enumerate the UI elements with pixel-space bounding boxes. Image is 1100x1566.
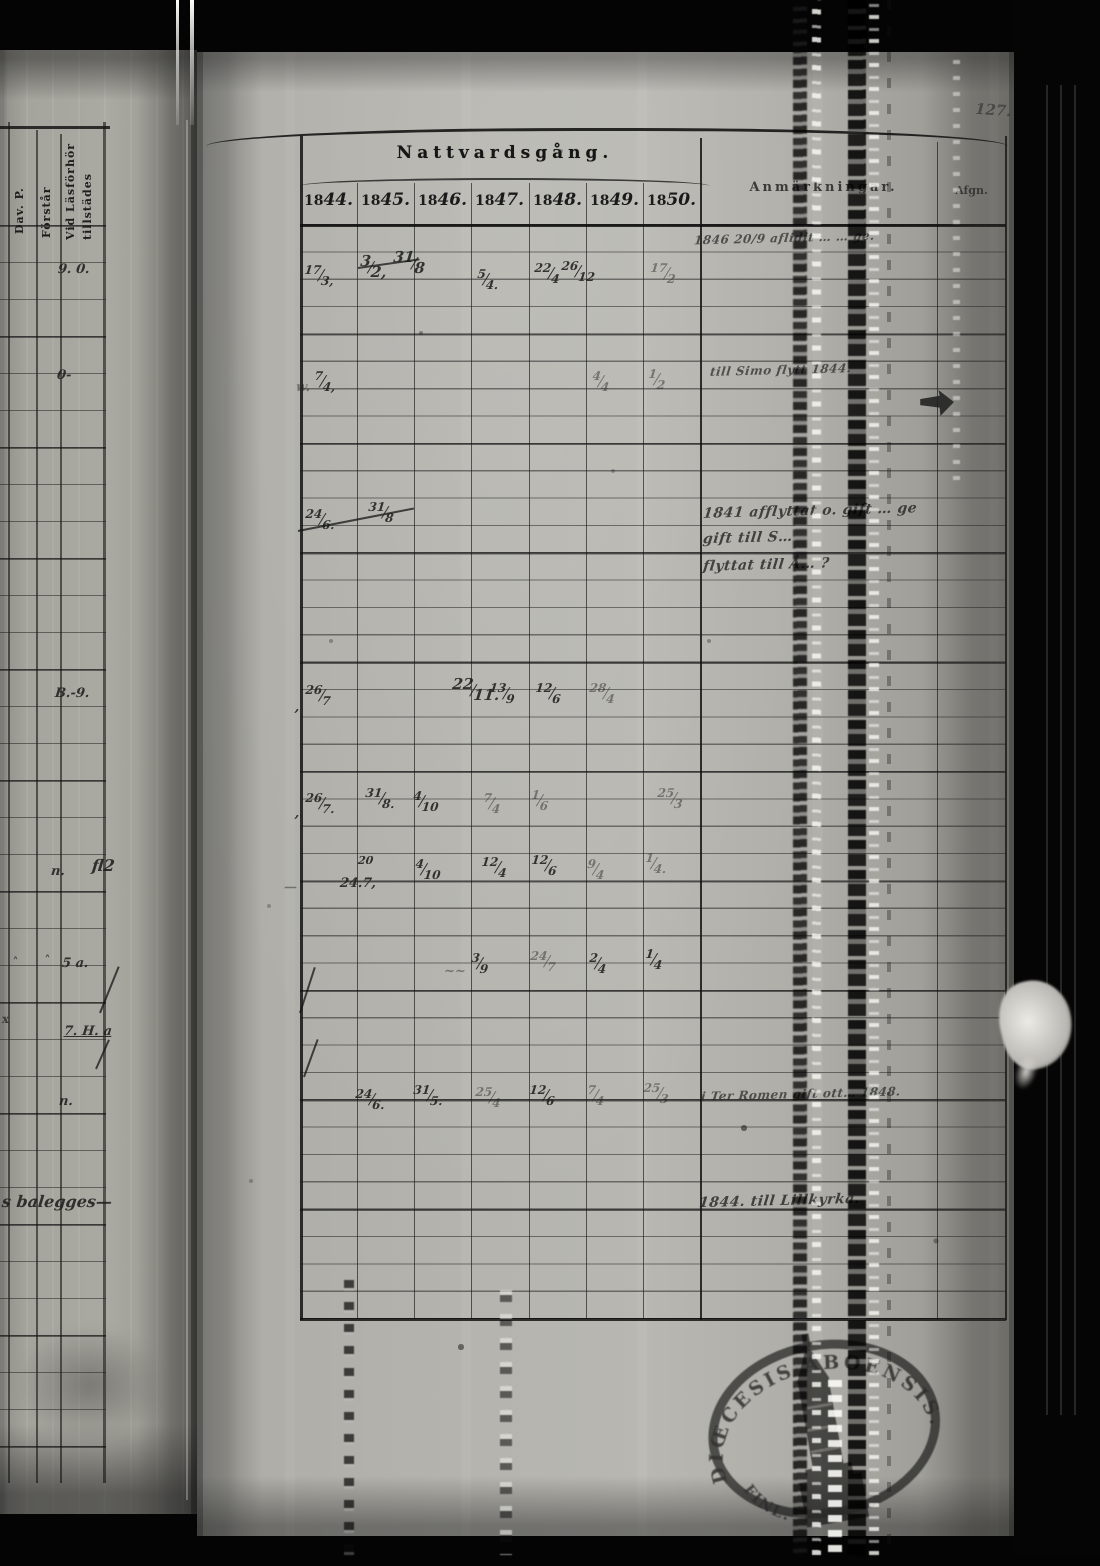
communion-date-entry: 12∕6 — [534, 684, 562, 702]
communion-date-entry: 12∕6 — [528, 1086, 556, 1104]
year-written: 45. — [380, 190, 410, 210]
communion-date-entry: 1∕4. — [644, 854, 668, 872]
communion-date-entry: 4∕4 — [591, 372, 611, 390]
communion-date-entry: 24∕7 — [529, 952, 557, 970]
year-printed: 18 — [647, 193, 666, 209]
year-label: 1844. — [300, 190, 357, 210]
year-printed: 18 — [361, 193, 380, 209]
communion-date-entry: ~~ — [443, 964, 466, 979]
communion-date-entry: 1∕4 — [644, 950, 664, 968]
ink-stroke — [95, 1039, 110, 1069]
gutter-highlight — [176, 0, 179, 125]
diocese-stamp: DIŒCESIS ABOENSIS. MAG. FINL. — [678, 1305, 971, 1562]
communion-date-entry: 17∕2 — [649, 264, 677, 282]
ink-stroke — [99, 966, 120, 1013]
svg-text:FINL.: FINL. — [738, 1475, 796, 1532]
remark-annotation: gift till S… — [702, 529, 794, 547]
communion-date-entry: 7∕4 — [482, 794, 502, 812]
table-row-lines — [300, 224, 1006, 1319]
communion-date-entry: 12∕4 — [480, 858, 508, 876]
communion-date-entry: 24.7, — [339, 876, 377, 891]
communion-date-entry: 24∕6. — [354, 1090, 386, 1108]
communion-date-entry: 5∕4. — [476, 270, 500, 288]
departed-column-header: Afgn. — [938, 184, 1005, 197]
communion-date-entry: , — [294, 700, 300, 715]
communion-date-entry: , — [294, 806, 300, 821]
year-written: 46. — [437, 190, 467, 210]
communion-date-entry: 20 — [357, 854, 374, 867]
year-label: 1850. — [643, 190, 700, 210]
communion-date-entry: 9∕4 — [586, 860, 606, 878]
year-label: 1847. — [471, 190, 528, 210]
gutter-highlight — [186, 120, 188, 1500]
stamp-svg: DIŒCESIS ABOENSIS. MAG. FINL. — [678, 1305, 971, 1562]
communion-date-entry: 25∕3 — [656, 789, 684, 807]
page-number: 127. — [974, 100, 1012, 121]
film-scratch-line — [1060, 85, 1062, 1415]
communion-date-entry: 25∕4 — [474, 1088, 502, 1106]
stamp-text-bottom: FINL. — [738, 1475, 796, 1532]
table-title: Nattvardsgång. — [300, 143, 710, 163]
communion-date-entry: 1∕6 — [530, 791, 550, 809]
communion-date-entry: 26∕12 — [560, 262, 596, 280]
communion-date-entry: 25∕3 — [642, 1084, 670, 1102]
communion-date-entry: 4∕10 — [414, 860, 442, 878]
year-label: 1845. — [357, 190, 414, 210]
communion-date-entry: 31∕8. — [364, 789, 396, 807]
year-printed: 18 — [475, 193, 494, 209]
year-written: 50. — [666, 190, 696, 210]
communion-date-entry: 26∕7. — [304, 794, 336, 812]
year-label: 1846. — [414, 190, 471, 210]
year-written: 49. — [609, 190, 639, 210]
year-printed: 18 — [590, 193, 609, 209]
year-written: 47. — [494, 190, 524, 210]
year-written: 44. — [323, 190, 353, 210]
communion-date-entry: 26∕7 — [304, 686, 332, 704]
year-printed: 18 — [304, 193, 323, 209]
communion-date-entry: w. — [295, 380, 311, 395]
communion-date-entry: 22∕4 — [533, 264, 561, 282]
communion-date-entry: 12∕6 — [530, 856, 558, 874]
remark-annotation: flyttat till Å… ? — [702, 555, 830, 574]
year-printed: 18 — [533, 193, 552, 209]
scanned-book-spread: Dav. P. Förstår Vid Läsförhör tillstädes… — [0, 0, 1100, 1555]
communion-date-entry: 28∕4 — [588, 684, 616, 702]
communion-date-entry: 1∕2 — [647, 370, 667, 388]
communion-date-entry: 17∕3, — [303, 266, 335, 284]
gutter-highlight — [190, 0, 194, 125]
year-label: 1849. — [586, 190, 643, 210]
communion-date-entry: — — [283, 880, 298, 895]
year-label: 1848. — [529, 190, 586, 210]
year-printed: 18 — [418, 193, 437, 209]
communion-date-entry: 7∕4 — [586, 1086, 606, 1104]
communion-date-entry: 3∕9 — [470, 954, 490, 972]
communion-date-entry: 2∕4 — [588, 954, 608, 972]
film-scratch-line — [1074, 85, 1076, 1415]
year-written: 48. — [552, 190, 582, 210]
communion-date-entry: 4∕10 — [412, 792, 440, 810]
communion-date-entry: 31∕5. — [412, 1086, 444, 1104]
communion-date-entry: 13∕9 — [488, 684, 516, 702]
communion-date-entry: 7∕4, — [313, 372, 337, 390]
paper-specks — [0, 0, 2, 2]
film-scratch-line — [1046, 85, 1048, 1415]
remarks-column-header: Anmärkningar. — [712, 180, 935, 195]
film-black-margin — [1014, 0, 1100, 1555]
record-book-page: Nattvardsgång. 1844. 1845. 1846. 1847. 1… — [197, 52, 1017, 1536]
